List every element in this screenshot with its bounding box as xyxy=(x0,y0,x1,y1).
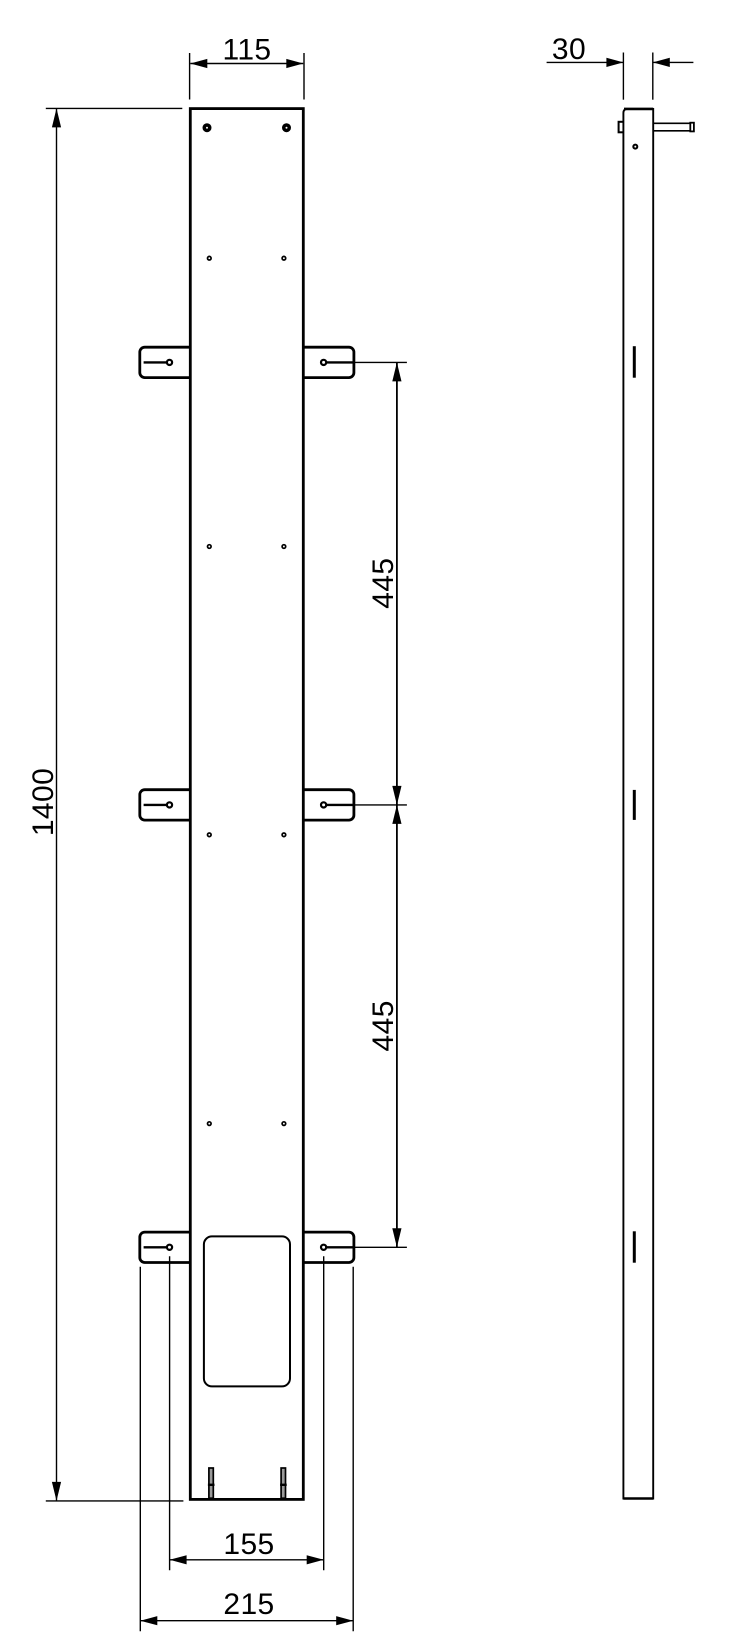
svg-text:115: 115 xyxy=(222,34,271,67)
svg-text:1400: 1400 xyxy=(27,768,60,836)
svg-text:30: 30 xyxy=(552,33,586,66)
svg-text:215: 215 xyxy=(223,1588,274,1621)
svg-text:445: 445 xyxy=(367,557,400,608)
svg-text:155: 155 xyxy=(223,1528,274,1561)
svg-text:445: 445 xyxy=(367,1000,400,1051)
